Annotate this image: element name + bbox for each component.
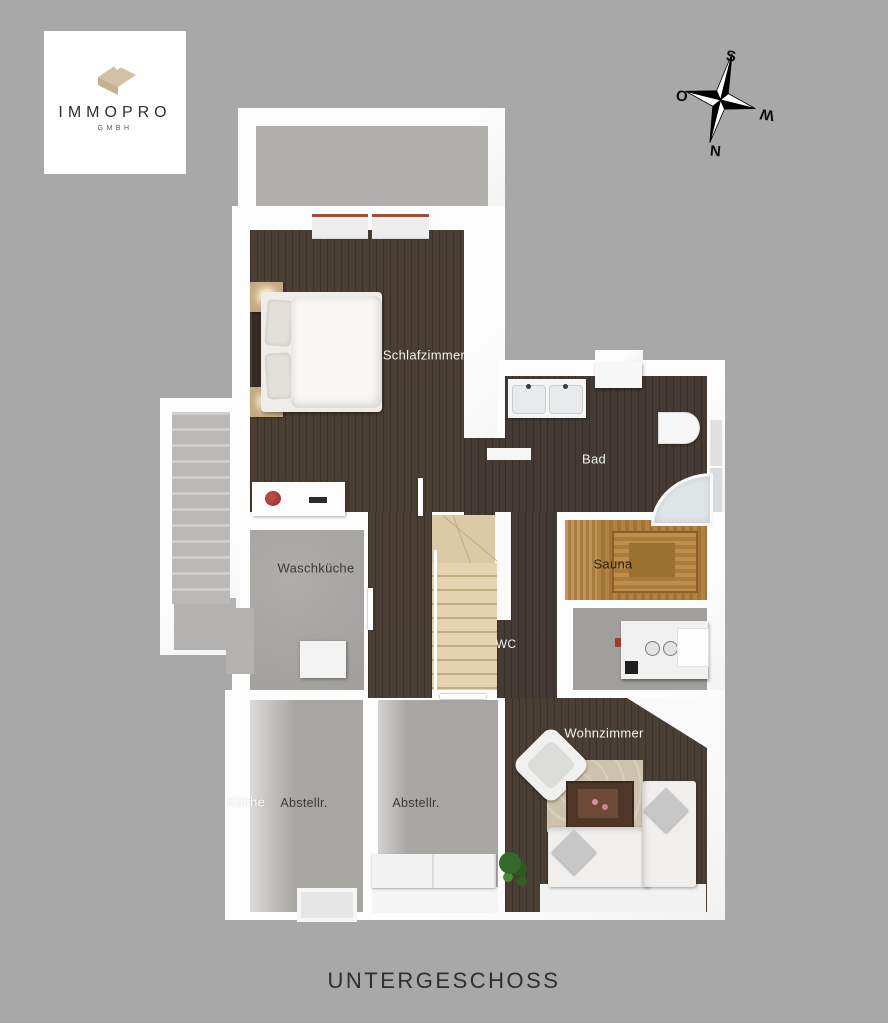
compass-rose: S O W N bbox=[668, 40, 780, 165]
wardrobe bbox=[372, 854, 496, 888]
sink-basin bbox=[512, 385, 546, 414]
gauge-dial bbox=[645, 641, 660, 656]
room-label-kueche: Küche bbox=[227, 795, 265, 810]
floorplan-canvas: Schlafzimmer Bad Sauna Waschküche WC Woh… bbox=[0, 0, 888, 1023]
wall-stair-right bbox=[495, 512, 511, 620]
sauna-center bbox=[629, 543, 675, 577]
light-well bbox=[297, 888, 357, 922]
potted-plant bbox=[499, 852, 521, 874]
company-logo: IMMOPRO GMBH bbox=[44, 31, 186, 174]
coffee-table-top bbox=[578, 789, 618, 818]
room-label-schlafzimmer: Schlafzimmer bbox=[383, 348, 465, 363]
window-sill bbox=[372, 887, 498, 913]
roof-icon bbox=[44, 63, 186, 102]
duvet bbox=[291, 296, 382, 408]
door-leaf bbox=[440, 694, 486, 699]
interior-stairs-winder bbox=[432, 515, 497, 565]
room-label-bad: Bad bbox=[582, 452, 606, 467]
stair-rail bbox=[434, 550, 437, 690]
room-label-sauna: Sauna bbox=[593, 557, 632, 572]
window-sill bbox=[540, 884, 706, 912]
washing-machine bbox=[300, 641, 346, 678]
logo-company-name: IMMOPRO bbox=[44, 104, 186, 122]
sauna-bench bbox=[565, 520, 597, 600]
room-label-wohnzimmer: Wohnzimmer bbox=[564, 726, 643, 741]
window-sill bbox=[372, 217, 429, 239]
page-title: UNTERGESCHOSS bbox=[328, 968, 561, 994]
wall-bathroom-bump bbox=[595, 350, 643, 362]
room-label-wc: WC bbox=[496, 637, 517, 651]
logo-legal-form: GMBH bbox=[44, 125, 186, 132]
table-decor bbox=[592, 799, 598, 805]
floor-hall-middle bbox=[368, 512, 432, 698]
compass-west-label: W bbox=[759, 105, 775, 124]
pillow bbox=[264, 299, 293, 347]
flower-decor bbox=[265, 491, 281, 506]
equipment-box bbox=[677, 628, 709, 667]
compass-north-label: N bbox=[709, 143, 721, 161]
sink-basin bbox=[549, 385, 583, 414]
room-label-abstellraum-rechts: Abstellr. bbox=[392, 796, 439, 810]
exterior-stairs bbox=[172, 412, 230, 604]
room-label-waschkueche: Waschküche bbox=[278, 561, 355, 576]
floor-terrace bbox=[256, 126, 488, 206]
equipment-valve bbox=[615, 638, 621, 647]
window-sill bbox=[312, 217, 368, 239]
interior-stairs-steps bbox=[432, 563, 497, 690]
bathroom-cabinet bbox=[595, 362, 642, 388]
door-leaf bbox=[368, 588, 373, 630]
compass-east-label: O bbox=[675, 87, 688, 105]
door-leaf bbox=[418, 478, 423, 516]
equipment-panel bbox=[625, 661, 638, 674]
floor-stair-connector bbox=[226, 608, 254, 674]
side-window bbox=[710, 420, 722, 466]
room-label-abstellraum-links: Abstellr. bbox=[280, 796, 327, 810]
decor-item bbox=[309, 497, 327, 503]
toilet bbox=[658, 412, 700, 444]
window-sill bbox=[487, 448, 531, 460]
gauge-dial bbox=[663, 641, 678, 656]
pillow bbox=[264, 352, 293, 400]
